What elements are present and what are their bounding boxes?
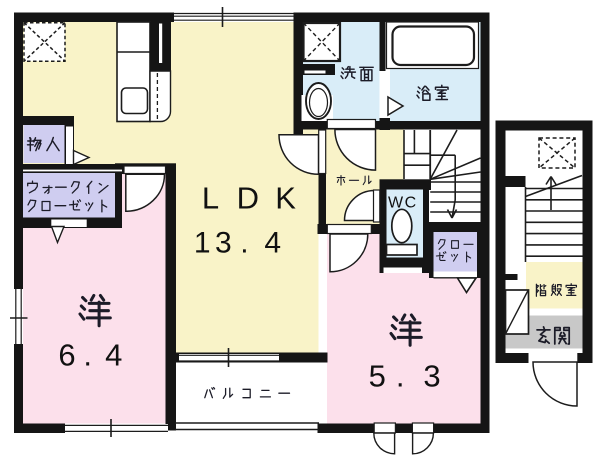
svg-text:3: 3 — [215, 227, 232, 260]
svg-text:3: 3 — [423, 358, 440, 393]
svg-text:K: K — [275, 181, 296, 216]
svg-text:D: D — [237, 181, 259, 216]
svg-text:4: 4 — [105, 338, 122, 373]
svg-text:.: . — [396, 358, 405, 393]
svg-text:.: . — [83, 338, 92, 373]
svg-text:5: 5 — [369, 358, 386, 393]
svg-text:1: 1 — [194, 227, 211, 260]
svg-text:6: 6 — [58, 338, 75, 373]
svg-text:L: L — [202, 181, 219, 216]
svg-text:WC: WC — [388, 195, 418, 212]
svg-text:4: 4 — [264, 227, 281, 260]
svg-text:.: . — [240, 227, 248, 260]
